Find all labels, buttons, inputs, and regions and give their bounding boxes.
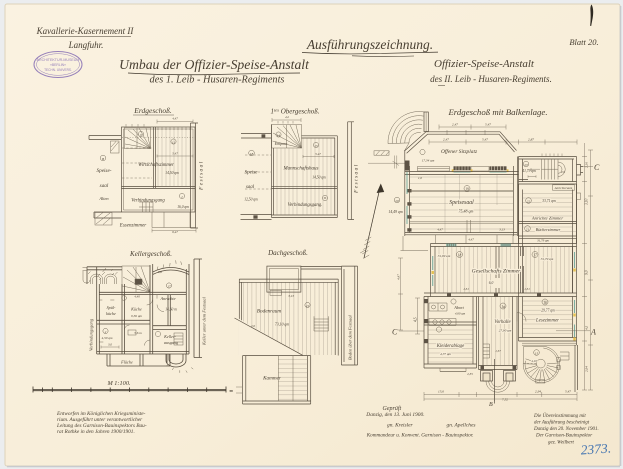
svg-text:Blatt 20.: Blatt 20. [569,37,598,47]
svg-text:Verbindungsgang.: Verbindungsgang. [288,203,323,208]
svg-text:rat Rothke in den Jahren 1900/: rat Rothke in den Jahren 1900/1901. [57,429,135,435]
svg-text:14: 14 [277,133,281,137]
svg-text:Dachgeschoß.: Dachgeschoß. [267,249,308,257]
svg-text:C: C [392,328,398,337]
svg-text:18: 18 [458,253,462,257]
svg-text:Speise: Speise [245,171,259,176]
svg-text:m: m [230,389,233,393]
svg-text:Ausführungszeichnung.: Ausführungszeichnung. [306,37,433,52]
svg-text:Bodenraum: Bodenraum [257,309,281,315]
svg-text:Vorhalle: Vorhalle [494,320,511,325]
svg-text:Alten: Alten [98,196,109,201]
svg-text:Verbindungsgang: Verbindungsgang [89,318,94,351]
svg-text:Danzig den 20. November 1901.: Danzig den 20. November 1901. [533,427,599,432]
svg-text:Kavallerie-Kasernement II: Kavallerie-Kasernement II [36,26,135,36]
svg-text:Küche: Küche [130,307,142,312]
svg-text:Umbau der Offizier-Speise-Anst: Umbau der Offizier-Speise-Anstalt [119,57,310,72]
svg-text:Erdgeschoß mit Balkenlage.: Erdgeschoß mit Balkenlage. [447,107,547,117]
svg-text:gez. Weilbert: gez. Weilbert [548,441,575,446]
svg-text:Anrichteraum: Anrichteraum [554,186,573,190]
svg-text:des II. Leib - Husaren-Reg: des II. Leib - Husaren-Regiments. [430,74,552,84]
svg-text:17: 17 [533,253,537,257]
svg-text:»BERLIN«: »BERLIN« [50,63,66,67]
svg-text:Die Übereinstimmung mit: Die Übereinstimmung mit [533,413,586,419]
svg-text:1: 1 [181,195,183,199]
svg-text:saal: saal [246,185,255,190]
svg-text:C: C [594,163,600,172]
svg-text:B: B [489,402,493,408]
svg-text:der Ausführung bescheinigt: der Ausführung bescheinigt [534,421,590,426]
svg-text:1a: 1a [501,305,505,309]
svg-text:17: 17 [167,284,171,288]
svg-text:20: 20 [395,199,399,203]
svg-text:Kommandeur u. Konvent. Garn: Kommandeur u. Konvent. Garnison - Bauins… [366,433,474,439]
svg-text:Gesellschafts Zimmer: Gesellschafts Zimmer [472,268,521,275]
svg-text:Keller-: Keller- [163,334,176,339]
svg-text:Speise-: Speise- [97,168,112,174]
svg-text:2373.: 2373. [580,440,611,457]
svg-text:ausgang: ausgang [164,340,178,345]
svg-text:F e s t s a a l: F e s t s a a l [199,161,205,191]
svg-text:19: 19 [465,187,469,191]
svg-text:Danzig, den 13. Juni 1900.: Danzig, den 13. Juni 1900. [365,412,424,418]
svg-text:saal: saal [100,183,109,189]
svg-text:M 1:100.: M 1:100. [106,380,130,387]
svg-text:Kleiderablage: Kleiderablage [436,344,465,349]
svg-text:Anrichte Zimmer: Anrichte Zimmer [531,216,563,221]
svg-text:Boden über dem Festsaal: Boden über dem Festsaal [348,314,353,360]
svg-text:16: 16 [543,301,547,305]
svg-text:Essenzimmer: Essenzimmer [119,224,146,229]
svg-text:A: A [590,328,596,337]
svg-text:rium. Ausgeführt unter verant: rium. Ausgeführt unter verantwortlicher [57,416,143,423]
svg-text:Empore: Empore [274,141,288,146]
svg-text:Wirtschaftszimmer: Wirtschaftszimmer [138,163,174,168]
svg-text:Erdgeschoß.: Erdgeschoß. [133,106,172,115]
svg-text:21: 21 [526,227,530,231]
svg-text:Kellergeschoß.: Kellergeschoß. [129,250,172,258]
svg-text:9: 9 [140,133,142,137]
svg-text:des 1. Leib - Husaren-Regimen: des 1. Leib - Husaren-Regiments [150,75,285,86]
svg-text:Lesezimmer: Lesezimmer [535,319,559,324]
svg-text:Entworfen im Königlichen Krieg: Entworfen im Königlichen Kriegsministe- [56,410,146,417]
svg-text:15: 15 [535,351,539,355]
svg-text:gn. Apellches: gn. Apellches [447,423,476,429]
svg-text:gn. Kreisler: gn. Kreisler [387,423,413,429]
svg-text:Der Garnison-Bauinspektor: Der Garnison-Bauinspektor [535,434,592,439]
svg-text:23: 23 [524,163,528,167]
svg-text:F e s t s a a l: F e s t s a a l [354,164,360,194]
svg-text:Anrichte: Anrichte [159,296,175,301]
svg-text:Mannschaftshaus: Mannschaftshaus [283,167,319,172]
svg-text:18: 18 [250,152,254,156]
svg-text:Keller unter dem Festsaal: Keller unter dem Festsaal [202,296,207,346]
svg-text:Verbindungsgang: Verbindungsgang [131,199,165,204]
svg-text:B: B [102,157,104,161]
svg-text:Speisesaal: Speisesaal [449,200,474,206]
svg-text:2: 2 [105,330,107,334]
svg-text:15: 15 [314,144,318,148]
svg-text:Offener Sitzplatz: Offener Sitzplatz [441,148,478,155]
svg-text:Abort: Abort [453,305,464,310]
svg-text:Spül-: Spül- [107,305,116,310]
svg-text:Langfuhr.: Langfuhr. [68,40,104,50]
svg-text:Geprüft: Geprüft [383,405,402,412]
svg-text:Kammer: Kammer [262,376,282,382]
svg-text:Offizier-Speise-Anstalt: Offizier-Speise-Anstalt [434,58,535,70]
svg-text:11: 11 [172,140,175,144]
svg-text:21: 21 [306,304,310,308]
svg-text:ARCHITEKTUR-MUSEUM: ARCHITEKTUR-MUSEUM [37,58,80,62]
svg-text:Bücherzimmer: Bücherzimmer [536,227,561,232]
svg-text:TECHN. UNIVERS.: TECHN. UNIVERS. [44,68,72,72]
svg-text:22: 22 [527,199,531,203]
svg-text:küche: küche [106,311,116,316]
svg-text:Fläche: Fläche [120,360,133,365]
